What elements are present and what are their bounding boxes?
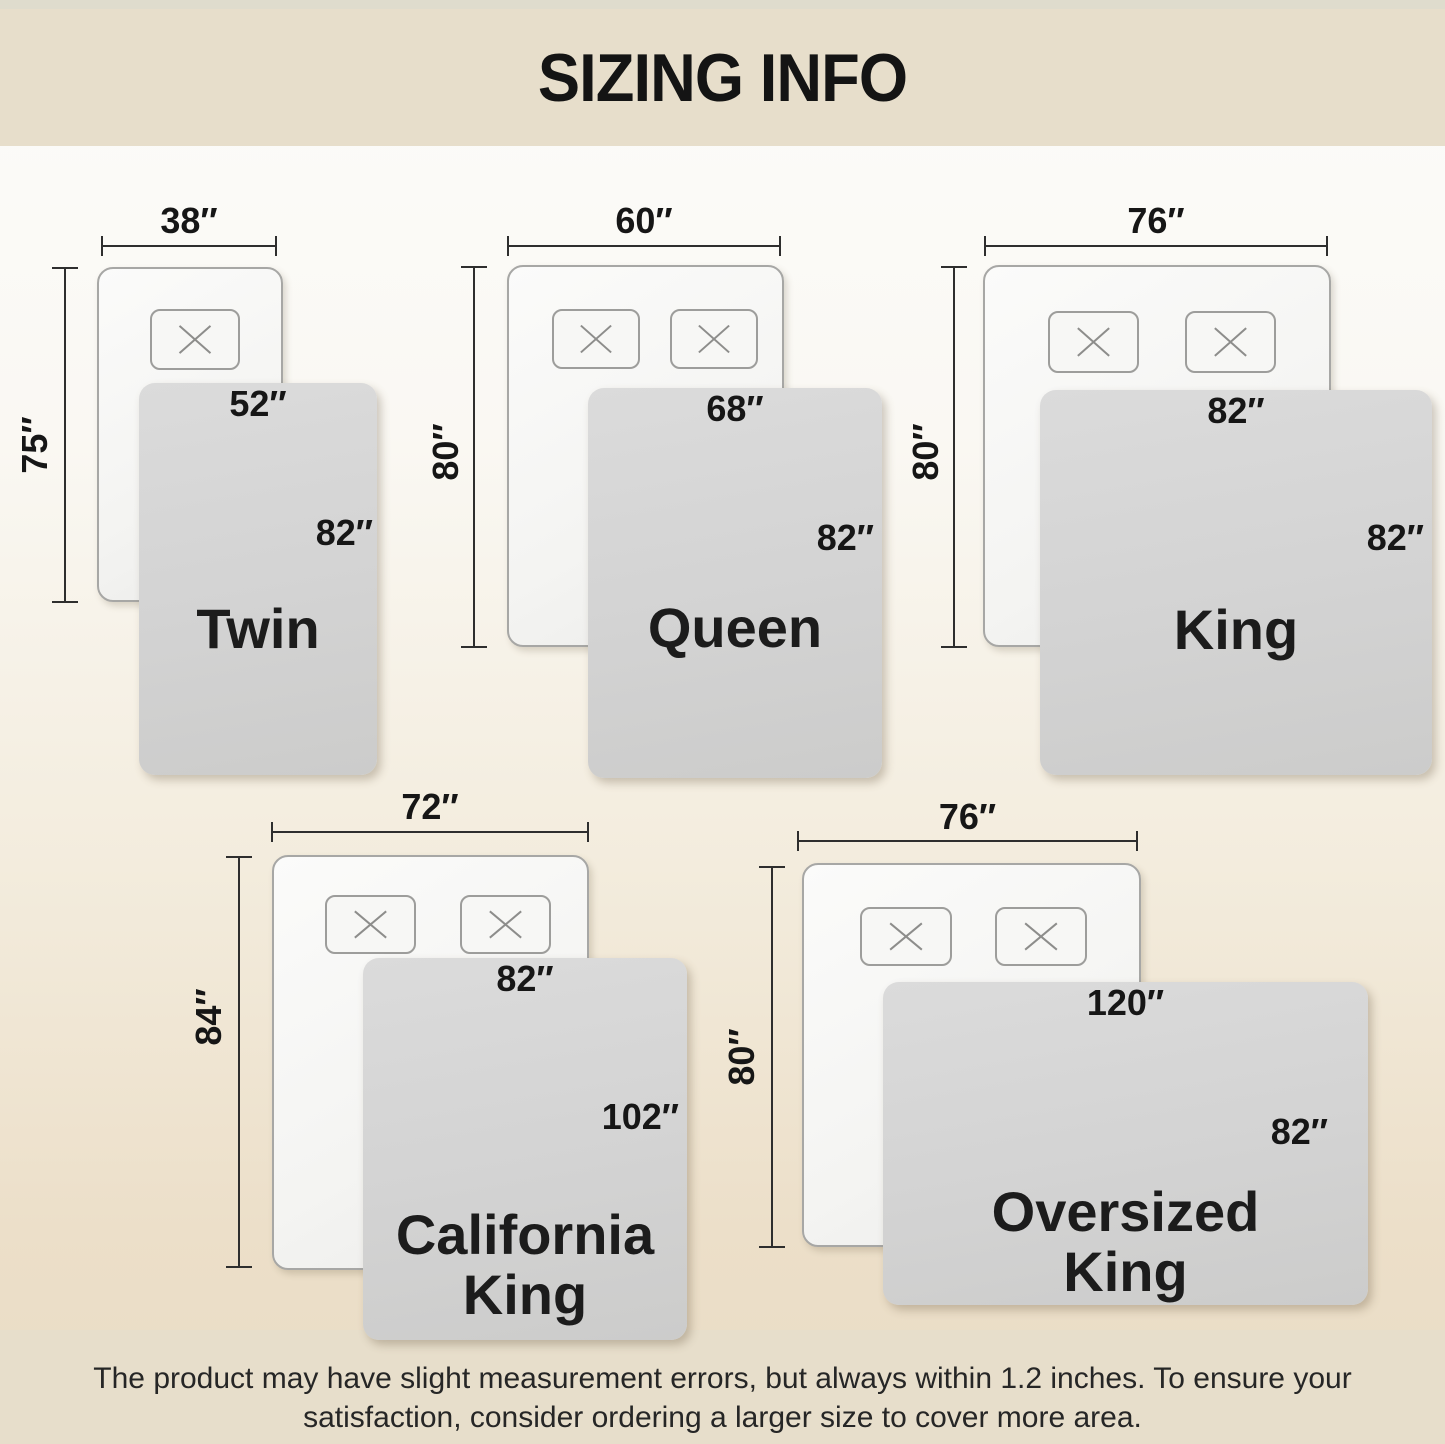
bed-length-dimension-line <box>473 267 475 647</box>
bed <box>983 265 1331 647</box>
size-name: King <box>1040 600 1432 660</box>
diagram-oversized-king: 76″ 80″ 120″ 82″ Oversized King <box>0 0 1445 1444</box>
size-name: Twin <box>139 599 377 659</box>
bed-length-label: 84″ <box>188 972 230 1062</box>
pillow <box>460 895 551 954</box>
blanket: 120″ 82″ Oversized King <box>883 982 1368 1305</box>
bed-width-dimension-line <box>102 245 276 247</box>
sizing-infographic: SIZING INFO 38″ 75″ 52″ 82″ Twin 60 <box>0 0 1445 1444</box>
blanket-width-label: 52″ <box>139 383 377 425</box>
size-name: Oversized King <box>961 1182 1291 1302</box>
dimension-tick <box>941 646 967 648</box>
bed-width-label: 76″ <box>985 200 1327 242</box>
blanket-length-label: 82″ <box>1367 517 1424 559</box>
dimension-tick <box>52 601 78 603</box>
bed-length-dimension-line <box>238 857 240 1267</box>
blanket-length-label: 82″ <box>316 512 373 554</box>
diagram-queen: 60″ 80″ 68″ 82″ Queen <box>0 0 1445 1444</box>
dimension-tick <box>1136 831 1138 851</box>
blanket-width-label: 68″ <box>588 388 882 430</box>
pillow <box>860 907 952 966</box>
dimension-tick <box>275 236 277 256</box>
blanket: 52″ 82″ Twin <box>139 383 377 775</box>
blanket-length-label: 82″ <box>1271 1111 1328 1153</box>
pillow-x-icon <box>462 897 549 952</box>
disclaimer-line-1: The product may have slight measurement … <box>0 1359 1445 1398</box>
blanket-width-label: 82″ <box>363 958 687 1000</box>
bed-width-dimension-line <box>508 245 780 247</box>
blanket: 82″ 82″ King <box>1040 390 1432 775</box>
bed <box>802 863 1141 1247</box>
bed-length-label: 75″ <box>14 400 56 490</box>
pillow-x-icon <box>672 311 756 367</box>
pillow-x-icon <box>862 909 950 964</box>
pillow <box>670 309 758 369</box>
dimension-tick <box>461 266 487 268</box>
bed-width-label: 60″ <box>508 200 780 242</box>
bed <box>97 267 283 602</box>
dimension-tick <box>759 866 785 868</box>
pillow-x-icon <box>1050 313 1137 371</box>
diagram-california-king: 72″ 84″ 82″ 102″ California King <box>0 0 1445 1444</box>
bed-width-dimension-line <box>272 831 588 833</box>
bed-width-label: 38″ <box>102 200 276 242</box>
dimension-tick <box>461 646 487 648</box>
dimension-tick <box>797 831 799 851</box>
bed-length-dimension-line <box>771 867 773 1247</box>
bed-width-dimension-line <box>798 840 1137 842</box>
pillow <box>552 309 640 369</box>
bed <box>272 855 589 1270</box>
pillow <box>150 309 240 370</box>
dimension-tick <box>52 267 78 269</box>
bed-width-label: 72″ <box>272 786 588 828</box>
dimension-tick <box>507 236 509 256</box>
bed <box>507 265 784 647</box>
bed-width-label: 76″ <box>798 796 1137 838</box>
pillow-x-icon <box>152 311 238 368</box>
dimension-tick <box>271 822 273 842</box>
page-title: SIZING INFO <box>538 39 907 117</box>
bed-length-label: 80″ <box>905 407 947 497</box>
bed-length-label: 80″ <box>721 1012 763 1102</box>
pillow-x-icon <box>997 909 1085 964</box>
dimension-tick <box>941 266 967 268</box>
dimension-tick <box>779 236 781 256</box>
dimension-tick <box>984 236 986 256</box>
blanket-length-label: 82″ <box>817 517 874 559</box>
top-strip <box>0 0 1445 9</box>
pillow <box>995 907 1087 966</box>
diagram-king: 76″ 80″ 82″ 82″ King <box>0 0 1445 1444</box>
size-name: Queen <box>588 598 882 658</box>
blanket-width-label: 82″ <box>1040 390 1432 432</box>
dimension-tick <box>1326 236 1328 256</box>
bed-width-dimension-line <box>985 245 1327 247</box>
blanket-length-label: 102″ <box>602 1096 679 1138</box>
blanket: 68″ 82″ Queen <box>588 388 882 778</box>
diagram-twin: 38″ 75″ 52″ 82″ Twin <box>0 0 1445 1444</box>
dimension-tick <box>226 1266 252 1268</box>
bed-length-dimension-line <box>953 267 955 647</box>
bed-length-dimension-line <box>64 268 66 602</box>
dimension-tick <box>759 1246 785 1248</box>
pillow <box>325 895 416 954</box>
pillow-x-icon <box>1187 313 1274 371</box>
size-name: California King <box>363 1205 687 1325</box>
bed-length-label: 80″ <box>425 407 467 497</box>
blanket: 82″ 102″ California King <box>363 958 687 1340</box>
pillow <box>1185 311 1276 373</box>
disclaimer-line-2: satisfaction, consider ordering a larger… <box>0 1398 1445 1437</box>
pillow <box>1048 311 1139 373</box>
dimension-tick <box>101 236 103 256</box>
dimension-tick <box>587 822 589 842</box>
dimension-tick <box>226 856 252 858</box>
footer-band: The product may have slight measurement … <box>0 1330 1445 1444</box>
blanket-width-label: 120″ <box>883 982 1368 1024</box>
pillow-x-icon <box>554 311 638 367</box>
pillow-x-icon <box>327 897 414 952</box>
header-band: SIZING INFO <box>0 9 1445 146</box>
